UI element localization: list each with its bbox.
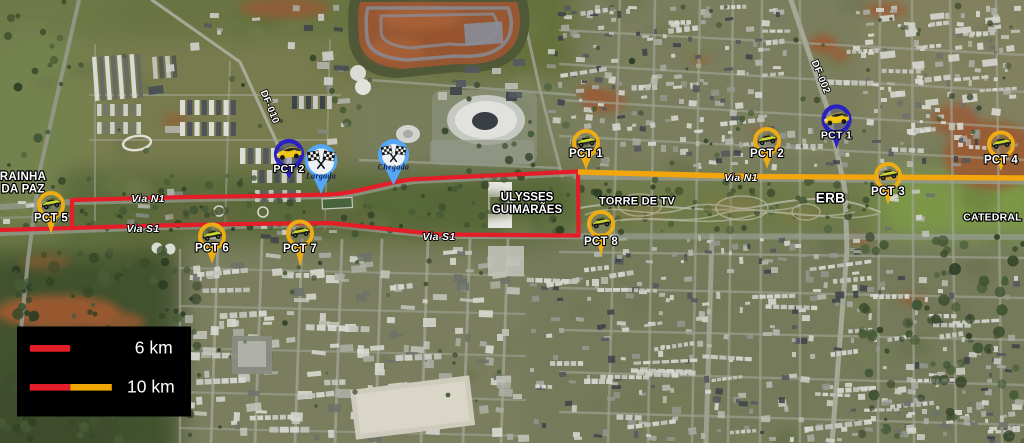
svg-text:PCT 3: PCT 3 — [871, 186, 905, 198]
svg-text:Chegada: Chegada — [378, 162, 409, 171]
svg-text:PCT 4: PCT 4 — [984, 155, 1018, 167]
svg-text:ERB: ERB — [816, 191, 845, 206]
svg-text:6 km: 6 km — [135, 338, 173, 358]
svg-text:PCT 1: PCT 1 — [569, 148, 603, 160]
svg-text:PCT 2: PCT 2 — [273, 163, 304, 175]
svg-text:CATEDRAL: CATEDRAL — [963, 212, 1022, 224]
svg-text:PCT 5: PCT 5 — [34, 213, 68, 225]
svg-text:Via N1: Via N1 — [724, 172, 758, 184]
svg-text:PCT 8: PCT 8 — [584, 236, 618, 248]
svg-text:ULYSSES: ULYSSES — [501, 192, 554, 204]
svg-text:Via N1: Via N1 — [131, 193, 165, 205]
svg-text:DA PAZ: DA PAZ — [1, 184, 44, 196]
svg-text:Via S1: Via S1 — [127, 223, 160, 235]
svg-text:GUIMARÃES: GUIMARÃES — [492, 203, 563, 216]
svg-text:PCT 7: PCT 7 — [283, 243, 317, 255]
svg-text:RAINHA: RAINHA — [0, 171, 46, 183]
svg-text:Via S1: Via S1 — [423, 231, 456, 243]
svg-text:PCT 2: PCT 2 — [750, 148, 784, 160]
svg-text:Largada: Largada — [305, 172, 336, 181]
svg-text:10 km: 10 km — [127, 377, 175, 397]
svg-text:PCT 1: PCT 1 — [821, 130, 852, 142]
svg-text:TORRE DE TV: TORRE DE TV — [599, 196, 675, 208]
svg-text:PCT 6: PCT 6 — [195, 243, 229, 255]
